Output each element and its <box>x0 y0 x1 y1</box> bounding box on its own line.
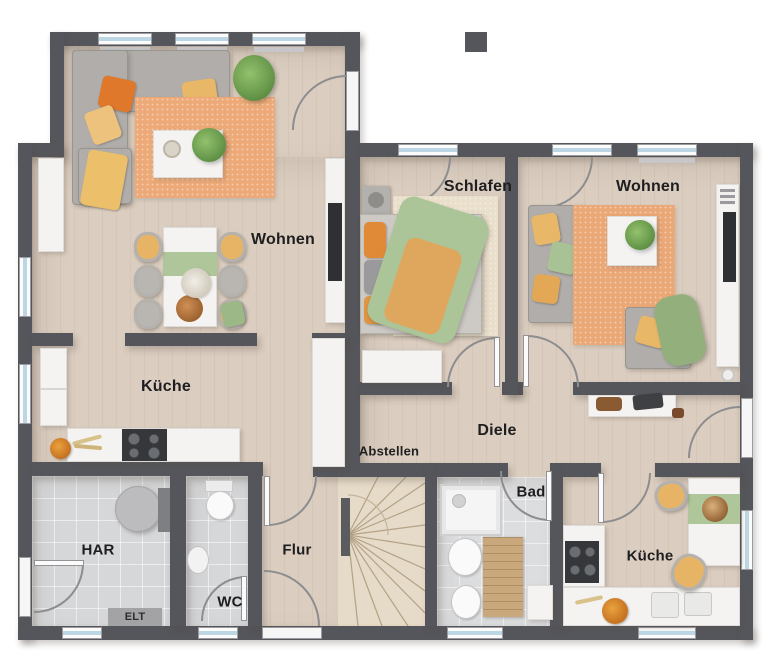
door-leaf-flur-top <box>264 476 270 526</box>
wall-bad-top <box>437 463 508 477</box>
window-sill <box>254 47 304 52</box>
door-leaf-wohnen-right <box>523 335 529 387</box>
room-label-flur: Flur <box>282 542 311 559</box>
decor-bowl <box>163 140 181 158</box>
room-label-elt: ELT <box>125 611 146 623</box>
tv-left <box>328 203 342 281</box>
door-leaf-bad <box>546 471 552 521</box>
cabinet-divider <box>40 388 67 390</box>
shower-drain <box>452 494 466 508</box>
room-label-diele: Diele <box>477 422 516 440</box>
door-leaf-kueche-right <box>598 473 604 523</box>
wall-schlafen-bottom <box>360 382 452 395</box>
window-kueche-right-side <box>741 510 753 570</box>
floorplan: Wohnen Schlafen Wohnen Küche Diele Abste… <box>0 0 775 662</box>
window-schlafen <box>398 144 458 156</box>
window-wohnen-right-1 <box>552 144 612 156</box>
entrance-door-left-unit <box>262 627 322 639</box>
fruit-bowl-2 <box>602 598 628 624</box>
window-wc <box>198 627 238 639</box>
har-unit <box>158 488 170 532</box>
terrace-door-wohnen-left <box>346 71 359 131</box>
dining-chair <box>134 232 162 262</box>
cooktop <box>122 429 167 461</box>
bad-toilet <box>451 585 481 619</box>
decor-cup <box>721 368 735 382</box>
wall-stairs-bad <box>425 463 437 626</box>
wc-sink <box>187 546 209 574</box>
dining-chair <box>134 299 162 329</box>
kitchen-tall-cabinet <box>40 348 67 426</box>
room-label-wc: WC <box>217 594 242 611</box>
room-label-wohnen-left: Wohnen <box>251 231 315 249</box>
window-kueche-right-bottom <box>638 627 696 639</box>
plant-palm <box>233 55 275 101</box>
wall-wohnen-kueche-1 <box>32 333 73 346</box>
room-label-wohnen-right: Wohnen <box>616 178 680 196</box>
nightstand-lamp <box>368 192 384 208</box>
bag-brown <box>596 397 622 411</box>
sink-basin <box>684 592 712 616</box>
corridor-cupboard <box>312 338 345 467</box>
flowers-white <box>181 268 211 298</box>
room-label-abstellen: Abstellen <box>359 444 419 459</box>
fruit-bowl <box>50 438 71 459</box>
room-label-kueche-right: Küche <box>627 548 674 565</box>
shoe-brown <box>672 408 684 418</box>
tv-right <box>723 212 736 282</box>
entrance-door-right-unit <box>741 398 753 458</box>
window-bad <box>447 627 503 639</box>
chimney <box>465 32 487 52</box>
window-wohnen-right-2 <box>637 144 697 156</box>
window-har <box>62 627 102 639</box>
cooktop-2 <box>565 541 599 583</box>
window-sill <box>639 158 695 163</box>
bad-sink <box>448 538 482 576</box>
bath-mat-wood <box>483 537 523 617</box>
room-label-bad: Bad <box>517 484 546 501</box>
wall-har-wc <box>170 476 186 626</box>
dining-chair <box>218 232 246 262</box>
wall-kueche-right-top-2 <box>655 463 740 477</box>
wall-wohnen-kueche-2 <box>125 333 257 346</box>
window-wohnen-left-side <box>19 257 31 317</box>
room-label-kueche-left: Küche <box>141 378 191 396</box>
chair-napkin-green <box>220 300 247 328</box>
window-wohnen-left-1 <box>98 33 152 45</box>
window-kueche-left <box>19 364 31 424</box>
plant-coffee-table-right <box>625 220 655 250</box>
books <box>720 189 735 205</box>
flower-vase <box>176 295 203 322</box>
wc-toilet <box>206 491 234 520</box>
wall-wc-flur <box>248 476 262 626</box>
bad-cabinet <box>527 585 553 620</box>
bed-pillow-orange <box>364 222 386 258</box>
staircase <box>338 477 425 626</box>
plant-coffee-table <box>192 128 226 162</box>
har-boiler <box>115 486 161 532</box>
door-leaf-har <box>34 560 84 566</box>
room-label-schlafen: Schlafen <box>444 178 512 196</box>
dining-chair <box>134 265 162 297</box>
sofa-pillow-yellow-2 <box>531 273 561 304</box>
door-leaf-schlafen <box>494 337 500 387</box>
har-exterior-door <box>19 557 31 617</box>
stair-newel <box>341 498 350 556</box>
wall-kueche-bottom <box>32 462 263 476</box>
dining-chair <box>218 265 246 297</box>
sink-basin <box>651 592 679 618</box>
schlafen-bench <box>362 350 442 383</box>
shower <box>440 484 502 536</box>
sideboard-left-wall <box>38 158 64 252</box>
decor-dark <box>632 392 663 410</box>
wall-kueche-right-top-1 <box>563 463 601 477</box>
wall-left-upper <box>50 32 64 157</box>
window-wohnen-left-2 <box>175 33 229 45</box>
table-bowl-2 <box>702 496 728 522</box>
room-label-har: HAR <box>81 542 114 559</box>
window-wohnen-left-3 <box>252 33 306 45</box>
